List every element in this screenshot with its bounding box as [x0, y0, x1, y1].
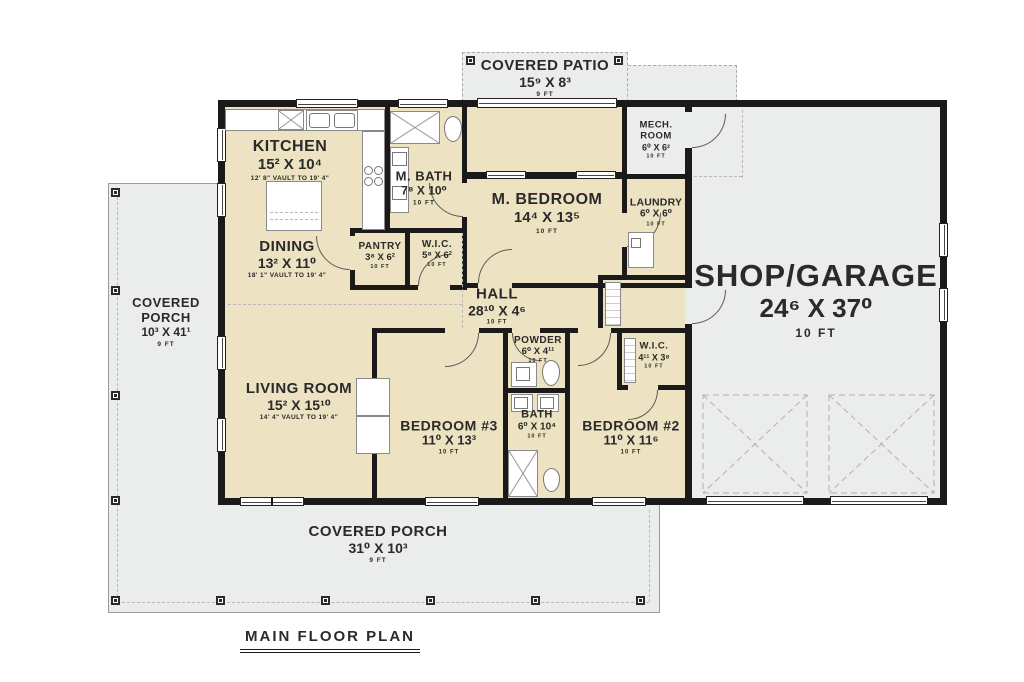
porch-edge-line — [108, 183, 218, 184]
window — [425, 497, 479, 506]
cabinet-cross-lines — [279, 111, 303, 129]
room-note: 10 FT — [359, 265, 402, 271]
window — [592, 497, 646, 506]
room-label-powder: POWDER 6⁰ X 4¹¹ 10 FT — [514, 335, 562, 365]
room-dims: 6⁰ X 10⁴ — [518, 421, 556, 433]
room-note: 10 FT — [468, 320, 526, 327]
room-label-wic-master: W.I.C. 5⁸ X 6² 10 FT — [422, 239, 452, 269]
door-opening — [685, 288, 692, 324]
room-note: 10 FT — [422, 263, 452, 269]
stove-burner — [364, 177, 373, 186]
room-label-covered-porch-bottom: COVERED PORCH 31⁰ X 10³ 9 FT — [308, 523, 447, 565]
room-name: BEDROOM #3 — [400, 418, 498, 434]
room-name: W.I.C. — [422, 239, 452, 251]
porch-inner-dashed-line — [117, 602, 649, 603]
room-dims: 11⁰ X 11⁶ — [582, 434, 680, 449]
room-dims: 6⁰ X 6² — [629, 142, 683, 152]
porch-post — [111, 596, 120, 605]
garage-entry-dashed-line — [742, 110, 743, 178]
porch-post — [216, 596, 225, 605]
window — [217, 128, 226, 162]
interior-wall — [598, 275, 685, 280]
room-dims: 10³ X 41¹ — [120, 326, 212, 340]
porch-post — [531, 596, 540, 605]
window — [576, 171, 616, 179]
window — [939, 288, 948, 322]
room-dims: 5⁸ X 6² — [422, 251, 452, 262]
room-label-shop-garage: SHOP/GARAGE 24⁶ X 37⁰ 10 FT — [694, 258, 938, 340]
room-label-m-bath: M. BATH 7⁸ X 10⁰ 10 FT — [396, 169, 453, 206]
room-note: 10 FT — [400, 450, 498, 457]
room-label-wic-2: W.I.C. 4¹¹ X 3⁸ 10 FT — [638, 342, 669, 371]
room-dims: 14⁴ X 13⁵ — [492, 209, 603, 226]
room-name: PANTRY — [359, 241, 402, 253]
room-label-bath: BATH 6⁰ X 10⁴ 10 FT — [518, 408, 556, 439]
room-label-kitchen: KITCHEN 15² X 10⁴ 12' 8" VAULT TO 19' 4" — [251, 138, 329, 182]
patio-sliding-door — [477, 98, 617, 108]
interior-wall — [622, 107, 627, 174]
room-dims: 11⁰ X 13³ — [400, 434, 498, 449]
room-dims: 4¹¹ X 3⁸ — [638, 353, 669, 363]
room-name: LAUNDRY — [630, 197, 682, 209]
vanity-sink — [392, 152, 407, 166]
window — [398, 99, 448, 108]
shower — [390, 111, 440, 144]
room-note: 10 FT — [694, 326, 938, 340]
closet — [356, 416, 390, 454]
window — [217, 183, 226, 217]
island-overhang-dashed-line — [270, 212, 318, 213]
room-name: M. BEDROOM — [492, 191, 603, 209]
room-label-bedroom-3: BEDROOM #3 11⁰ X 13³ 10 FT — [400, 418, 498, 457]
room-name: COVERED PORCH — [308, 523, 447, 540]
room-dims: 31⁰ X 10³ — [308, 540, 447, 556]
interior-wall — [508, 388, 565, 393]
room-name: POWDER — [514, 335, 562, 347]
interior-wall — [405, 228, 410, 290]
porch-post — [636, 596, 645, 605]
vanity-sink — [514, 397, 528, 409]
room-name: BEDROOM #2 — [582, 418, 680, 434]
porch-post — [111, 188, 120, 197]
room-note: 9 FT — [308, 557, 447, 564]
closet — [356, 378, 390, 416]
room-name: BATH — [518, 408, 556, 421]
room-note: 10 FT — [492, 228, 603, 235]
garage-door-ceiling-cross — [828, 394, 935, 494]
garage-entry-dashed-line — [694, 176, 742, 177]
room-note: 9 FT — [120, 341, 212, 348]
room-dims: 15⁹ X 8³ — [481, 74, 609, 90]
shower-cross-lines — [391, 112, 439, 143]
room-label-living-room: LIVING ROOM 15² X 15¹⁰ 14' 4" VAULT TO 1… — [246, 380, 352, 422]
kitchen-sink-basin — [309, 113, 330, 128]
room-note: 18' 1" VAULT TO 19' 4" — [248, 272, 326, 279]
vanity-sink — [516, 367, 530, 381]
room-dims: 6⁰ X 6⁰ — [630, 209, 682, 221]
room-name: M. BATH — [396, 169, 453, 184]
garage-door — [706, 496, 804, 505]
closet-rod — [624, 338, 636, 383]
stove-burner — [364, 166, 373, 175]
porch-post — [111, 391, 120, 400]
room-name: COVERED PORCH — [120, 296, 212, 326]
porch-post — [111, 496, 120, 505]
room-dims: 7⁸ X 10⁰ — [396, 184, 453, 198]
ceiling-break-dashed-line — [462, 233, 463, 328]
plan-title: MAIN FLOOR PLAN — [240, 628, 420, 653]
exterior-wall — [218, 100, 692, 107]
ceiling-break-dashed-line — [228, 304, 462, 305]
plan-title-text: MAIN FLOOR PLAN — [240, 628, 420, 650]
room-label-pantry: PANTRY 3⁸ X 6² 10 FT — [359, 241, 402, 271]
closet — [605, 282, 621, 326]
room-dims: 15² X 15¹⁰ — [246, 397, 352, 413]
porch-post — [426, 596, 435, 605]
room-label-m-bedroom: M. BEDROOM 14⁴ X 13⁵ 10 FT — [492, 191, 603, 235]
room-name: LIVING ROOM — [246, 380, 352, 397]
room-dims: 24⁶ X 37⁰ — [694, 293, 938, 323]
window — [217, 418, 226, 452]
room-note: 9 FT — [481, 91, 609, 98]
island-overhang-dashed-line — [270, 219, 318, 220]
floor-plan: COVERED PATIO 15⁹ X 8³ 9 FT MECH. ROOM 6… — [0, 0, 1024, 682]
garage-door — [830, 496, 928, 505]
stove-burner — [374, 177, 383, 186]
room-note: 14' 4" VAULT TO 19' 4" — [246, 414, 352, 421]
porch-post — [466, 56, 475, 65]
room-name: MECH. ROOM — [629, 120, 683, 142]
room-label-hall: HALL 28¹⁰ X 4⁶ 10 FT — [468, 285, 526, 326]
interior-wall — [617, 333, 622, 390]
room-note: 10 FT — [638, 364, 669, 370]
kitchen-counter — [225, 109, 385, 131]
room-dims: 3⁸ X 6² — [359, 253, 402, 264]
room-name: COVERED PATIO — [481, 57, 609, 74]
room-note: 10 FT — [630, 221, 682, 227]
room-note: 10 FT — [518, 433, 556, 439]
kitchen-sink-basin — [334, 113, 355, 128]
door-opening — [350, 236, 355, 270]
room-dims: 6⁰ X 4¹¹ — [514, 347, 562, 358]
room-name: KITCHEN — [251, 138, 329, 156]
room-note: 10 FT — [396, 199, 453, 206]
exterior-wall — [692, 100, 947, 107]
room-label-bedroom-2: BEDROOM #2 11⁰ X 11⁶ 10 FT — [582, 418, 680, 457]
left-porch-floor — [108, 183, 225, 613]
porch-edge-line — [659, 505, 660, 613]
room-name: W.I.C. — [638, 342, 669, 353]
window-mullion — [271, 497, 273, 506]
kitchen-island — [266, 181, 322, 231]
interior-wall — [598, 275, 603, 333]
porch-post — [321, 596, 330, 605]
stove-burner — [374, 166, 383, 175]
porch-post — [614, 56, 623, 65]
window — [486, 171, 526, 179]
room-dims: 28¹⁰ X 4⁶ — [468, 303, 526, 319]
shower-cross-lines — [509, 451, 537, 496]
garage-door-ceiling-cross — [702, 394, 808, 494]
room-name: SHOP/GARAGE — [694, 258, 938, 294]
room-note: 12' 8" VAULT TO 19' 4" — [251, 175, 329, 182]
porch-post — [111, 286, 120, 295]
room-label-covered-patio: COVERED PATIO 15⁹ X 8³ 9 FT — [481, 57, 609, 99]
room-dims: 13² X 11⁰ — [248, 255, 326, 271]
porch-edge-line — [108, 183, 109, 613]
room-label-mech-room: MECH. ROOM 6⁰ X 6² 10 FT — [629, 120, 683, 160]
kitchen-corner-cabinet — [278, 110, 304, 130]
room-note: 10 FT — [514, 359, 562, 365]
room-label-covered-porch-left: COVERED PORCH 10³ X 41¹ 9 FT — [120, 296, 212, 348]
vanity-sink — [540, 397, 554, 409]
room-dims: 15² X 10⁴ — [251, 156, 329, 173]
window — [296, 99, 358, 108]
room-name: DINING — [248, 238, 326, 255]
interior-wall — [565, 333, 570, 498]
washer-door — [631, 238, 641, 248]
window — [939, 223, 948, 257]
door-opening — [685, 112, 692, 148]
room-label-laundry: LAUNDRY 6⁰ X 6⁰ 10 FT — [630, 197, 682, 228]
porch-inner-dashed-line — [649, 510, 650, 602]
room-label-dining: DINING 13² X 11⁰ 18' 1" VAULT TO 19' 4" — [248, 238, 326, 280]
shower — [508, 450, 538, 497]
interior-wall — [622, 174, 685, 179]
window — [217, 336, 226, 370]
room-name: HALL — [468, 285, 526, 302]
porch-edge-line — [108, 612, 660, 613]
room-note: 10 FT — [629, 153, 683, 159]
room-note: 10 FT — [582, 450, 680, 457]
